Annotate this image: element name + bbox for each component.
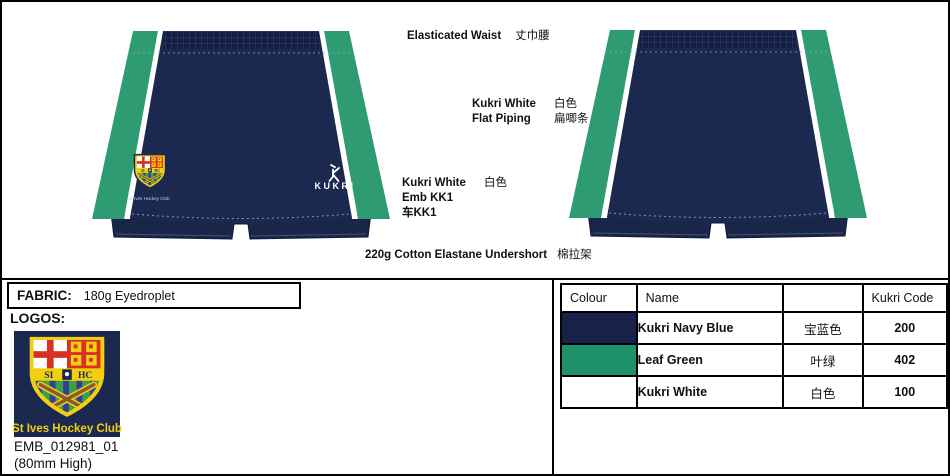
table-row-green: Leaf Green 叶绿 402 (561, 344, 947, 376)
table-row-navy: Kukri Navy Blue 宝蓝色 200 (561, 312, 947, 344)
emb-line2: Emb KK1 (402, 192, 453, 204)
annotation-flat-piping: Kukri White白色 Flat Piping扁唧条 (472, 97, 589, 127)
flat-piping-line2-zh: 扁唧条 (554, 113, 589, 125)
annotation-undershort: 220g Cotton Elastane Undershort棉拉架 (365, 248, 592, 263)
colour-table: Colour Name Kukri Code Kukri Navy Blue 宝… (560, 283, 948, 409)
code-green: 402 (863, 344, 947, 376)
fabric-label: FABRIC: (17, 288, 72, 303)
fabric-box: FABRIC: 180g Eyedroplet (7, 282, 301, 309)
size-note: (80mm High) (14, 456, 92, 471)
annotation-elasticated-waist: Elasticated Waist丈巾腰 (407, 29, 550, 44)
emb-line1-en: Kukri White (402, 176, 482, 191)
swatch-white (561, 376, 637, 408)
code-white: 100 (863, 376, 947, 408)
club-logo-crest (19, 333, 115, 421)
zh-white: 白色 (783, 376, 862, 408)
header-kukri-code: Kukri Code (863, 284, 947, 312)
zh-green: 叶绿 (783, 344, 862, 376)
name-green: Leaf Green (637, 344, 784, 376)
header-name: Name (637, 284, 784, 312)
annotation-emb: Kukri White白色 Emb KK1 车KK1 (402, 176, 507, 221)
undershort-en: 220g Cotton Elastane Undershort (365, 249, 547, 261)
club-logo-panel: St Ives Hockey Club (14, 331, 120, 437)
elasticated-waist-zh: 丈巾腰 (515, 30, 550, 42)
kukri-wordmark: KUKRI (315, 181, 356, 191)
shorts-back-view (564, 30, 872, 245)
header-colour: Colour (561, 284, 637, 312)
spec-sheet: SI HC (0, 0, 950, 476)
club-name-band: St Ives Hockey Club (14, 421, 120, 437)
swatch-green (561, 344, 637, 376)
emb-line1-zh: 白色 (484, 177, 507, 189)
code-navy: 200 (863, 312, 947, 344)
emb-line3: 车KK1 (402, 207, 437, 219)
zh-navy: 宝蓝色 (783, 312, 862, 344)
emb-code: EMB_012981_01 (14, 439, 118, 454)
vertical-divider (552, 278, 554, 476)
swatch-navy (561, 312, 637, 344)
name-white: Kukri White (637, 376, 784, 408)
colour-table-header-row: Colour Name Kukri Code (561, 284, 947, 312)
shorts-front-view: St Ives Hockey Club KUKRI (87, 31, 395, 246)
horizontal-divider (2, 278, 950, 280)
front-club-text: St Ives Hockey Club (128, 196, 170, 201)
table-row-white: Kukri White 白色 100 (561, 376, 947, 408)
logos-label: LOGOS: (10, 310, 65, 326)
flat-piping-line2-en: Flat Piping (472, 112, 552, 127)
fabric-value: 180g Eyedroplet (84, 289, 175, 303)
header-zh (783, 284, 862, 312)
flat-piping-line1-zh: 白色 (554, 98, 577, 110)
undershort-zh: 棉拉架 (557, 249, 592, 261)
flat-piping-line1-en: Kukri White (472, 97, 552, 112)
elasticated-waist-en: Elasticated Waist (407, 30, 501, 42)
name-navy: Kukri Navy Blue (637, 312, 784, 344)
